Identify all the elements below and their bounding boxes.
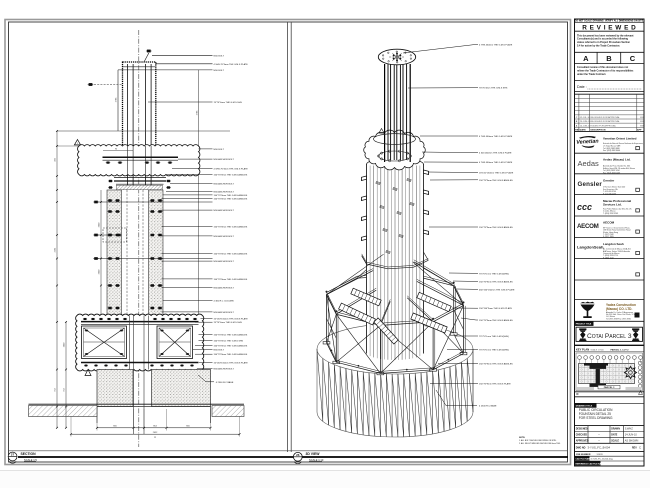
svg-text:150*75*9mm THK G.M.S ANGLES: 150*75*9mm THK G.M.S ANGLES [214,198,248,201]
svg-text:REV: REV [632,448,637,450]
svg-text:CHECKED: CHECKED [576,435,588,437]
svg-text:SECTION: SECTION [21,452,37,456]
svg-text:3-YUS_FC_B-004: 3-YUS_FC_B-004 [588,446,611,450]
svg-text:Langdon Seah: Langdon Seah [603,242,624,246]
svg-text:B: B [606,54,612,63]
svg-text:F: 2317 7609: F: 2317 7609 [603,236,614,238]
svg-text:ccc: ccc [577,202,592,212]
svg-text:150*75*9mm THK G.M.S ANGLES: 150*75*9mm THK G.M.S ANGLES [479,179,513,182]
svg-text:Fax: (853) 2882 8666: Fax: (853) 2882 8666 [603,150,620,152]
svg-text:M16 BOLT: M16 BOLT [214,149,225,151]
svg-text:M16 ANCHOR BOLT: M16 ANCHOR BOLT [214,190,235,193]
svg-text:DWG NO: DWG NO [576,448,586,450]
svg-text:M16 BOLT: M16 BOLT [214,70,225,72]
svg-text:150*75*9mm THK G.M.S ANGLES: 150*75*9mm THK G.M.S ANGLES [214,226,248,229]
svg-text:150*75*9mm THK G.M.S ANGLES: 150*75*9mm THK G.M.S ANGLES [479,280,513,283]
svg-text:75*75*6 mm THK G.M.S(SHS): 75*75*6 mm THK G.M.S(SHS) [479,336,509,338]
svg-text:DO NOT SCALE DRAWING. VERIFY A: DO NOT SCALE DRAWING. VERIFY ALL DIMENSI… [575,20,645,23]
svg-text:R E V I E W E D: R E V I E W E D [582,24,636,31]
svg-text:4 2500 R.C BASE: 4 2500 R.C BASE [479,405,497,408]
svg-text:Services Ltd.: Services Ltd. [603,203,622,207]
svg-text:Aedas (Macau) Ltd.: Aedas (Macau) Ltd. [603,158,631,162]
svg-text:M16 BOLT: M16 BOLT [214,350,225,352]
svg-text:AS SHOWN: AS SHOWN [625,440,639,443]
svg-text:M16 ANCHOR BOLT: M16 ANCHOR BOLT [214,368,235,371]
svg-text:25-JUN-10: 25-JUN-10 [580,121,591,123]
svg-text:DESIGNED: DESIGNED [576,429,588,431]
svg-text:DATE: DATE [611,434,618,437]
svg-text:14-JUN-10: 14-JUN-10 [580,125,591,127]
svg-text:76*76*4mm THK G.M.S SHS: 76*76*4mm THK G.M.S SHS [214,102,243,104]
svg-text:SCALE 1:7500: SCALE 1:7500 [591,348,605,351]
svg-text:Venetian Orient Limited: Venetian Orient Limited [603,137,637,141]
svg-text:Tel: 2875 3938 Fax: 2875 39: Tel: 2875 3938 Fax: 2875 3936 [606,318,631,320]
svg-text:150*75*9mm THK G.M.S ANGLES: 150*75*9mm THK G.M.S ANGLES [214,333,248,336]
svg-text:COTAI PARCEL 3: COTAI PARCEL 3 [587,333,632,340]
svg-text:150*75*9mm THK G.M.S ANGLES: 150*75*9mm THK G.M.S ANGLES [214,353,248,356]
svg-text:4 SHS 76*4mm THK G.M.S PLATE: 4 SHS 76*4mm THK G.M.S PLATE [214,168,249,171]
svg-text:4 SHS 76*4mm THK G.M.S PLATE: 4 SHS 76*4mm THK G.M.S PLATE [214,63,249,66]
svg-text:Venetian: Venetian [576,139,599,146]
svg-text:75*75*6 mm THK G.M.S(SHS): 75*75*6 mm THK G.M.S(SHS) [479,350,509,352]
svg-text:150*75*9mm THK G.M.S ANGLES: 150*75*9mm THK G.M.S ANGLES [214,194,248,197]
svg-text:3D VIEW: 3D VIEW [306,452,321,456]
svg-text:PROJECT TITLE: PROJECT TITLE [576,324,592,326]
svg-text:PARCEL 3: PARCEL 3 [604,386,615,389]
svg-text:RE-ISSUED FOR APPROVAL: RE-ISSUED FOR APPROVAL [591,120,621,123]
svg-text:A: A [583,54,589,63]
svg-text:FOR STEEL DRAWING: FOR STEEL DRAWING [579,416,613,420]
svg-text:M16 ANCHOR BOLT: M16 ANCHOR BOLT [214,287,235,290]
svg-text:16*150*150mm THK G.M.S PLATE: 16*150*150mm THK G.M.S PLATE [214,362,249,365]
svg-text:26: 26 [296,453,300,457]
svg-text:3-YUS_FC_B-004.dwg: 3-YUS_FC_B-004.dwg [591,459,614,461]
svg-text:DRAWN: DRAWN [611,428,620,431]
svg-text:Aedas: Aedas [578,159,600,168]
svg-text:T: (853) 2832 3263: T: (853) 2832 3263 [603,213,618,215]
svg-text:JOB NUMBER: JOB NUMBER [576,454,591,456]
svg-text:150*75*9mm THK G.M.S ANGLES: 150*75*9mm THK G.M.S ANGLES [479,363,513,366]
svg-text:76*76*4mm THK G.M.S SHS: 76*76*4mm THK G.M.S SHS [479,88,508,90]
svg-text:ISSUED FOR APPROVAL: ISSUED FOR APPROVAL [591,124,617,127]
svg-text:75*75*6 mm THK G.M.S(SHS): 75*75*6 mm THK G.M.S(SHS) [479,273,509,275]
svg-text:M16 ANCHOR BOLT: M16 ANCHOR BOLT [214,209,235,212]
svg-text:SCALE: SCALE [611,440,619,443]
svg-text:M16 ANCHOR BOLT: M16 ANCHOR BOLT [214,260,235,263]
svg-text:AECOM: AECOM [603,220,615,224]
svg-text:CAD FILE NAME: CAD FILE NAME [576,458,592,461]
svg-text:4 THK 460mm THK G.M.S PLATE: 4 THK 460mm THK G.M.S PLATE [479,135,513,138]
svg-text:N: N [577,392,579,396]
svg-text:150*75*9mm THK G.M.S ANGLES: 150*75*9mm THK G.M.S ANGLES [214,174,248,177]
svg-text:(Macau) CO. LTD.: (Macau) CO. LTD. [606,307,632,311]
svg-text:M16 BOLT: M16 BOLT [214,55,225,57]
svg-text:150*150*9mm THK G.M.S PLATE: 150*150*9mm THK G.M.S PLATE [479,307,513,310]
svg-text:M16 ANCHOR BOLT: M16 ANCHOR BOLT [214,311,235,314]
svg-text:150*75*9mm THK G.M.S ANGLES: 150*75*9mm THK G.M.S ANGLES [214,278,248,281]
svg-text:31528: 31528 [597,454,604,456]
svg-text:--: -- [598,440,600,443]
svg-text:16*150*150mm THK G.M.S PLATE: 16*150*150mm THK G.M.S PLATE [214,318,249,321]
svg-text:C: C [639,446,641,450]
svg-text:REFERENCE CAD FILE NAME: REFERENCE CAD FILE NAME [576,462,605,465]
svg-text:F: 415.836.4599: F: 415.836.4599 [603,194,616,196]
svg-text:150*75*9mm THK G.M.S ANGLES: 150*75*9mm THK G.M.S ANGLES [479,226,513,229]
svg-text:under the Trade Contract.: under the Trade Contract. [577,73,606,76]
svg-text:C: C [630,54,636,63]
svg-text:150*75*9mm THK G.M.S ANGLES: 150*75*9mm THK G.M.S ANGLES [479,319,513,322]
svg-text:14-JUN-10: 14-JUN-10 [625,434,638,437]
svg-text:Gensler: Gensler [603,178,615,182]
svg-text:PARCEL 1, LOT 2: PARCEL 1, LOT 2 [611,348,630,351]
svg-text:KEY PLAN: KEY PLAN [576,347,589,351]
svg-text:M16 ANCHOR BOLT: M16 ANCHOR BOLT [214,235,235,238]
svg-text:4 THK 460mm THK G.M.S PLATE: 4 THK 460mm THK G.M.S PLATE [479,43,513,46]
svg-text:76*76*4mm THK G.M.S SHS: 76*76*4mm THK G.M.S SHS [214,322,243,324]
svg-text:M16 ANCHOR BOLT: M16 ANCHOR BOLT [214,158,235,161]
svg-text:150*75*9mm THK G.M.S ANGLES: 150*75*9mm THK G.M.S ANGLES [214,253,248,256]
svg-text:150*75*9mm THK G.M.S SHS: 150*75*9mm THK G.M.S SHS [214,340,244,342]
svg-text:LangdonSeah: LangdonSeah [577,245,604,250]
svg-text:RE-ISSUED FOR APPROVAL: RE-ISSUED FOR APPROVAL [591,116,621,119]
svg-text:2. ALL FILLET WELDED SHOULD BE: 2. ALL FILLET WELDED SHOULD BE 6mm THK. [519,442,561,445]
svg-text:Fax: (853) 2833 1039: Fax: (853) 2833 1039 [603,172,620,174]
svg-text:150*75*9mm THK G.M.S ANGLES: 150*75*9mm THK G.M.S ANGLES [214,344,248,347]
svg-text:1. ALL BOLT SHOULD BE FIXING O: 1. ALL BOLT SHOULD BE FIXING ON SITE. [519,439,557,442]
svg-text:4 300 460mm THK G.M.S PLATE: 4 300 460mm THK G.M.S PLATE [479,152,512,155]
svg-text:460*150*150mm THK G.M.S PLATE: 460*150*150mm THK G.M.S PLATE [479,288,515,291]
svg-text:F: 2833 1532: F: 2833 1532 [603,257,614,259]
svg-text:02-JUL-10: 02-JUL-10 [580,117,591,119]
svg-text:APPROVED: APPROVED [576,440,589,443]
svg-text:S.WHZ: S.WHZ [625,428,634,431]
svg-text:M16 ANCHOR BOLT: M16 ANCHOR BOLT [214,183,235,186]
svg-text:Date :: Date : [577,85,587,89]
svg-text:27: 27 [11,453,15,457]
svg-text:16*150*150mm THK G.M.S PLATE: 16*150*150mm THK G.M.S PLATE [479,172,514,175]
svg-text:AECOM: AECOM [577,223,599,230]
svg-text:--: -- [598,434,600,437]
svg-text:4 300 R.C COLUMN: 4 300 R.C COLUMN [214,300,234,302]
svg-text:Gensler: Gensler [578,181,603,188]
svg-text:150*75*9mm THK G.M.S PLATE: 150*75*9mm THK G.M.S PLATE [479,383,511,386]
svg-text:NOTE:: NOTE: [519,437,526,439]
svg-text:4 THK 460mm THK G.M.S PLATE: 4 THK 460mm THK G.M.S PLATE [479,161,513,164]
svg-text:5.4 for action by the Trade Co: 5.4 for action by the Trade Contractor. [577,45,620,48]
svg-text:4 2500 R.C BASE: 4 2500 R.C BASE [216,381,234,384]
